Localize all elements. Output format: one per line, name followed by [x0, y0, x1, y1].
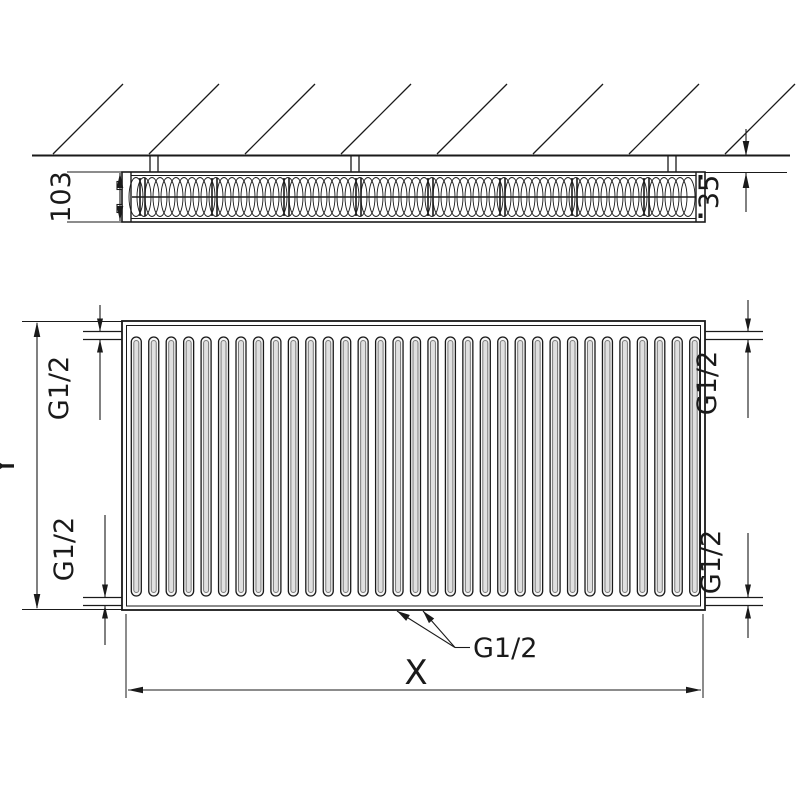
arrowhead [745, 585, 751, 598]
conn-top-left-label: G1/2 [44, 356, 75, 420]
panel-slot-inner [239, 341, 244, 593]
hatch-line [437, 84, 507, 154]
hatch-line [725, 84, 795, 154]
hatch-line [245, 84, 315, 154]
conn-bottom-left-label: G1/2 [49, 517, 80, 581]
panel-slot-inner [291, 341, 296, 593]
panel-slot-inner [553, 341, 558, 593]
panel-slot-inner [361, 341, 366, 593]
panel-slot-inner [535, 341, 540, 593]
panel-slot-inner [169, 341, 174, 593]
panel-slot-inner [430, 341, 435, 593]
leader-arrowhead [397, 611, 410, 621]
arrowhead [745, 319, 751, 332]
technical-drawing-canvas: 103 35 G1/2 G1/2 G1/2 G1/2 G1/2 Y X [0, 0, 800, 800]
panel-slot-inner [640, 341, 645, 593]
panel-slot-inner [343, 341, 348, 593]
dim-width-label: X [404, 653, 427, 693]
panel-slot-inner [256, 341, 261, 593]
dim-height-label: Y [0, 455, 23, 477]
arrowhead [745, 606, 751, 619]
panel-slot-inner [675, 341, 680, 593]
panel-slot-inner [448, 341, 453, 593]
hatch-line [629, 84, 699, 154]
hatch-line [53, 84, 123, 154]
arrowhead [97, 340, 103, 353]
conn-top-right-label: G1/2 [692, 351, 723, 415]
panel-slot-inner [518, 341, 523, 593]
panel-slot-inner [396, 341, 401, 593]
panel-slot-inner [570, 341, 575, 593]
panel-slot-inner [622, 341, 627, 593]
panel-slot-inner [204, 341, 209, 593]
hatch-line [533, 84, 603, 154]
arrowhead [743, 141, 750, 156]
panel-slot-inner [657, 341, 662, 593]
radiator-front-view [83, 321, 763, 610]
panel-slot-inner [378, 341, 383, 593]
arrowhead [34, 322, 41, 337]
panel-slot-inner [273, 341, 278, 593]
panel-slot-inner [605, 341, 610, 593]
panel-slot-inner [134, 341, 139, 593]
radiator-drawing: 103 35 G1/2 G1/2 G1/2 G1/2 G1/2 Y X [0, 0, 800, 800]
arrowhead [102, 585, 108, 598]
panel-slot-inner [221, 341, 226, 593]
end-cap-detail [699, 214, 703, 219]
conn-bottom-right-label: G1/2 [696, 530, 727, 594]
arrowhead [128, 687, 143, 694]
dim-wall-distance-label: 35 [694, 175, 725, 209]
panel-slot-inner [186, 341, 191, 593]
wall-hatching [32, 84, 795, 156]
arrowhead [97, 319, 103, 332]
panel-slot-inner [308, 341, 313, 593]
panel-slot-inner [326, 341, 331, 593]
dim-depth-label: 103 [46, 171, 77, 223]
arrowhead [743, 173, 750, 188]
arrowhead [686, 687, 701, 694]
panel-slot-inner [465, 341, 470, 593]
arrowhead [745, 340, 751, 353]
panel-slot-inner [588, 341, 593, 593]
panel-slot-inner [500, 341, 505, 593]
arrowhead [34, 594, 41, 609]
conn-bottom-center-label: G1/2 [473, 633, 537, 664]
arrowhead [102, 606, 108, 619]
panel-slot-inner [483, 341, 488, 593]
panel-slot-inner [151, 341, 156, 593]
hatch-line [341, 84, 411, 154]
hatch-line [149, 84, 219, 154]
panel-slot-inner [413, 341, 418, 593]
radiator-top-view [117, 156, 705, 222]
